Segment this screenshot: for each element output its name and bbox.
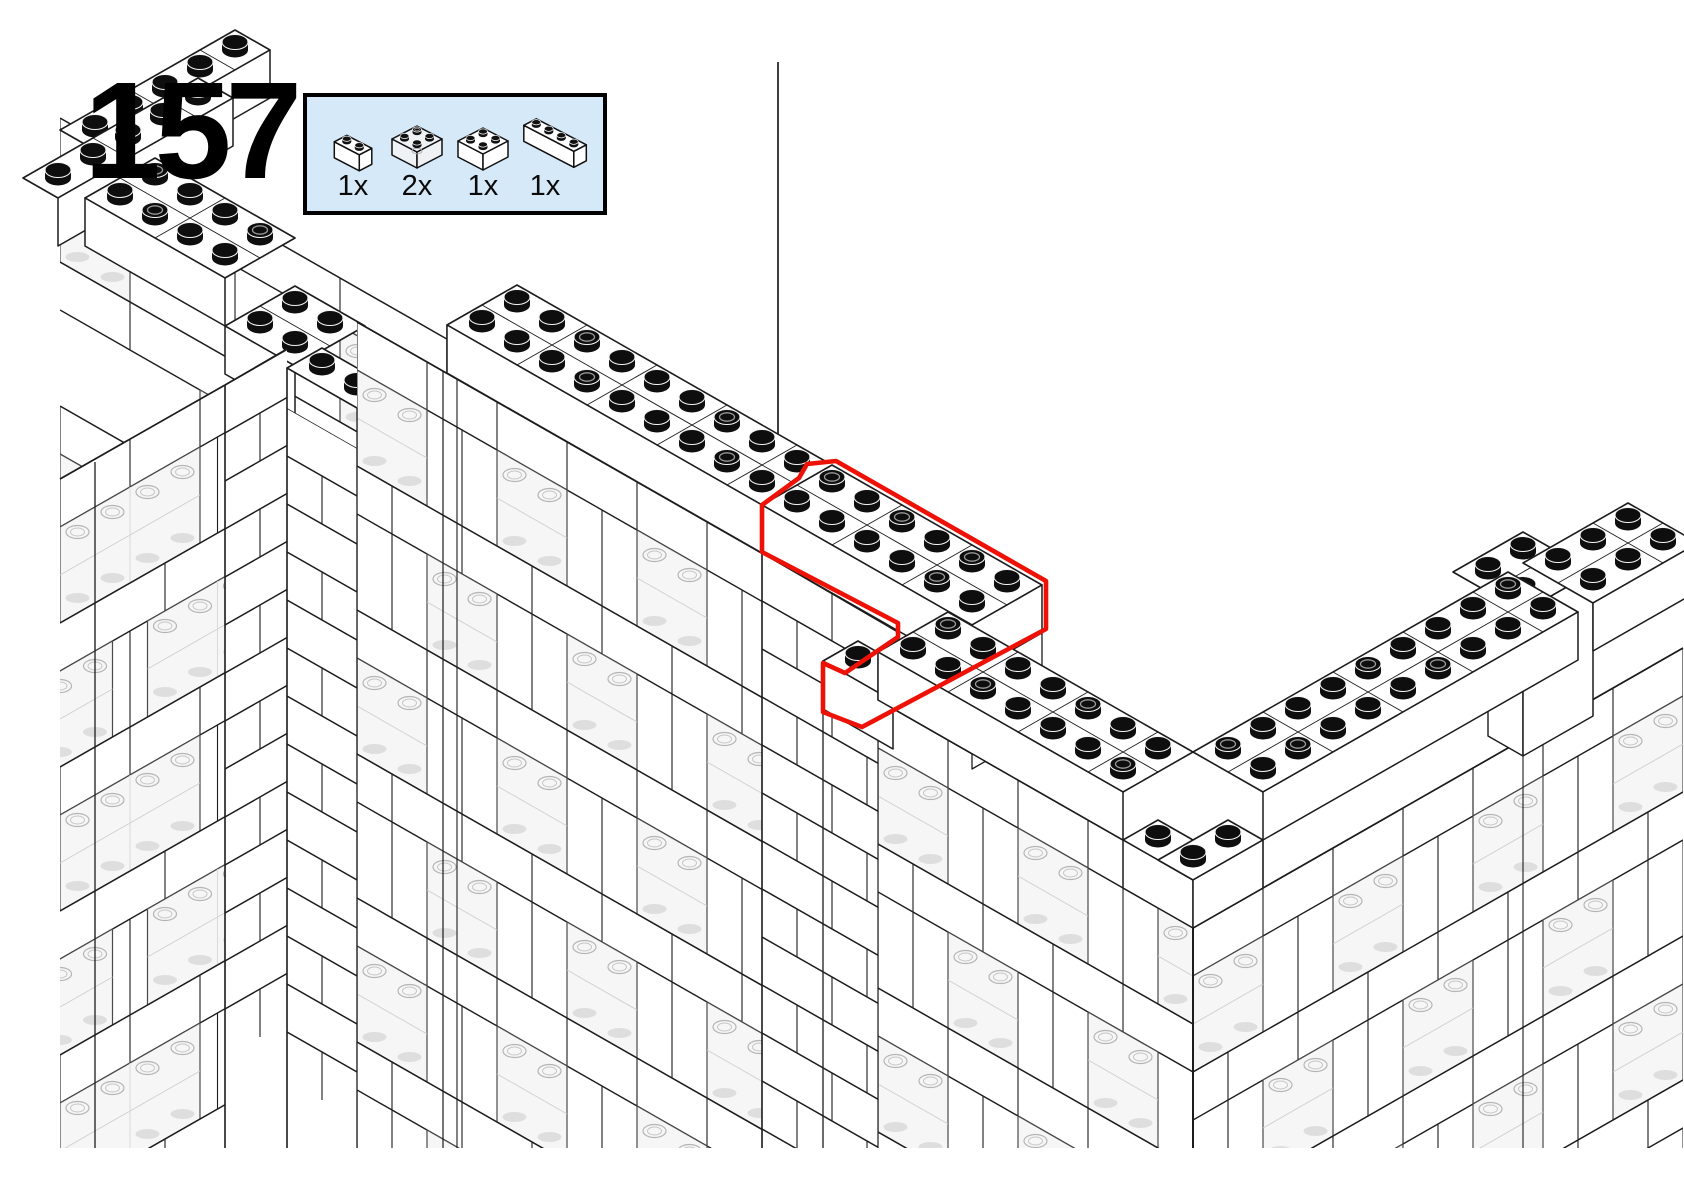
wall-face (287, 408, 357, 1148)
part-count-label: 1x (513, 170, 577, 203)
instruction-page: 157 1x 2x 1x 1x (0, 0, 1684, 1192)
wall-face (225, 349, 287, 1148)
brick-1x4-icon (524, 119, 587, 168)
part-count-label: 1x (451, 170, 515, 203)
brick-2x2-transparent-icon (392, 126, 442, 168)
parts-callout: 1x 2x 1x 1x (303, 93, 607, 215)
part-count-label: 2x (385, 170, 449, 203)
brick-2x2-icon (458, 128, 508, 170)
step-number: 157 (84, 62, 296, 200)
part-count-label: 1x (321, 170, 385, 203)
brick-1x2-icon (334, 135, 372, 171)
